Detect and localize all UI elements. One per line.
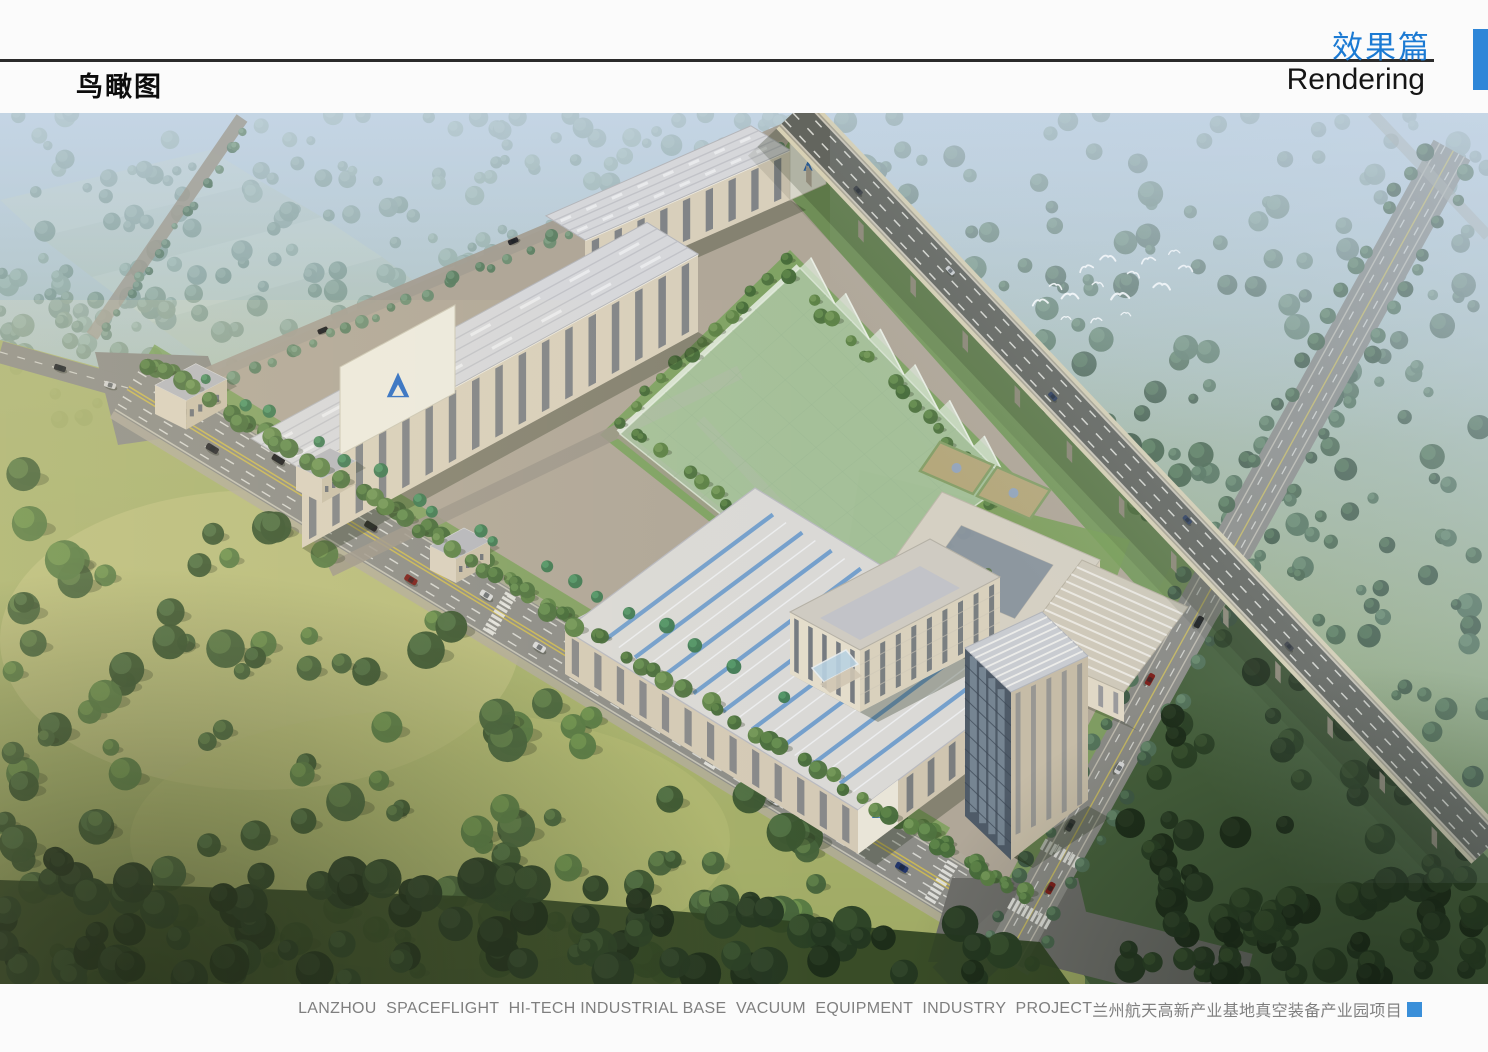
header-rule: [0, 59, 1434, 62]
album-page: 效果篇 Rendering 鸟瞰图: [0, 0, 1488, 1052]
header-accent-block: [1473, 29, 1488, 90]
aerial-rendering-image: [0, 113, 1488, 984]
section-title-zh: 效果篇: [1332, 22, 1431, 67]
caption-zh: 兰州航天高新产业基地真空装备产业园项目: [1092, 997, 1402, 1021]
vignette-bottom-left: [0, 430, 820, 984]
section-title-en: Rendering: [1287, 63, 1425, 97]
caption: LANZHOU SPACEFLIGHT HI-TECH INDUSTRIAL B…: [298, 997, 1422, 1021]
aerial-rendering-svg: [0, 113, 1488, 984]
caption-en: LANZHOU SPACEFLIGHT HI-TECH INDUSTRIAL B…: [298, 1000, 1092, 1018]
caption-accent-block: [1407, 1002, 1422, 1017]
vignette-bottom-right: [900, 560, 1488, 984]
page-title: 鸟瞰图: [76, 65, 163, 104]
